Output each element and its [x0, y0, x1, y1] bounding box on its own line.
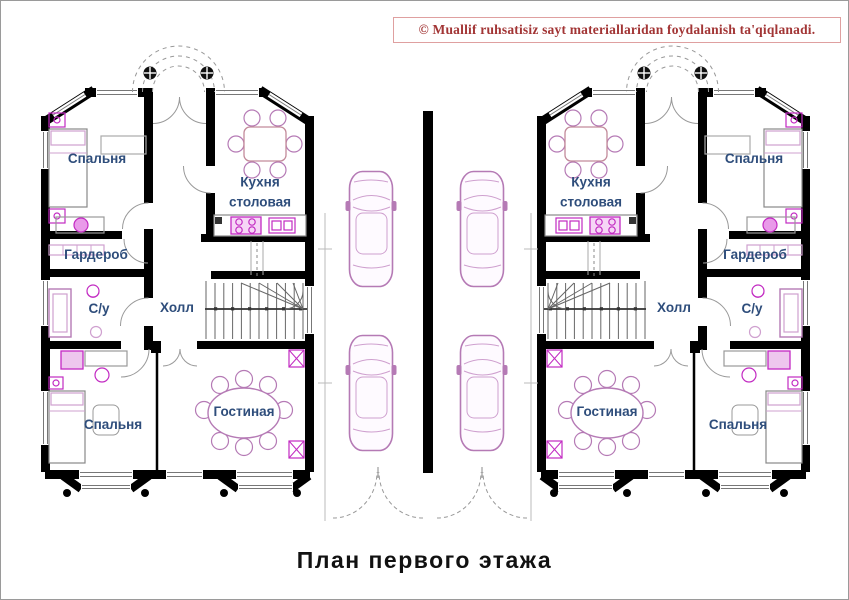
room-label-kitchen-dining: Кухня столовая	[217, 172, 303, 211]
staircase	[544, 241, 646, 339]
copyright-notice: © Muallif ruhsatisiz sayt materiallarida…	[393, 17, 841, 43]
room-label-wardrobe: Гардероб	[723, 245, 787, 265]
staircase	[205, 241, 307, 339]
car-icon	[457, 172, 508, 287]
plan-title: План первого этажа	[1, 547, 848, 574]
floor-plan-drawing	[1, 1, 849, 600]
room-label-bathroom: С/у	[741, 299, 762, 319]
room-label-hall: Холл	[657, 298, 691, 318]
room-label-kitchen-dining: Кухня столовая	[548, 172, 634, 211]
room-label-hall: Холл	[160, 298, 194, 318]
room-label-living-room: Гостиная	[213, 402, 274, 422]
room-label-wardrobe: Гардероб	[64, 245, 128, 265]
car-icon	[346, 172, 397, 287]
car-icon	[457, 336, 508, 451]
interior-doors	[641, 97, 731, 377]
interior-doors	[121, 97, 211, 377]
room-label-bedroom-top: Спальня	[68, 149, 126, 169]
room-label-bedroom-top: Спальня	[725, 149, 783, 169]
room-label-bedroom-bottom: Спальня	[709, 415, 767, 435]
house-left	[41, 46, 314, 497]
room-label-bathroom: С/у	[88, 299, 109, 319]
gate-swing-arcs	[333, 467, 527, 518]
room-label-bedroom-bottom: Спальня	[84, 415, 142, 435]
entrance-porch	[627, 46, 719, 92]
car-icon	[346, 336, 397, 451]
courtyard	[318, 111, 538, 521]
floor-plan-canvas: СпальняКухня столоваяГардеробС/уХоллСпал…	[0, 0, 849, 600]
divider-wall	[423, 111, 433, 473]
room-label-living-room: Гостиная	[576, 402, 637, 422]
entrance-porch	[133, 46, 225, 92]
house-right	[537, 46, 810, 497]
